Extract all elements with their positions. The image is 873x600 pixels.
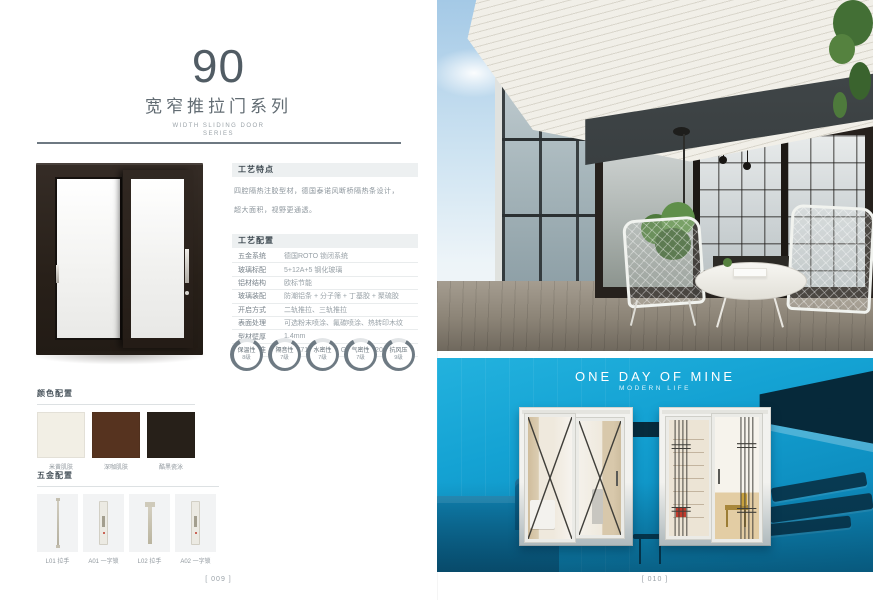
rating-grade: 9级 (394, 355, 403, 362)
config-value: 防潮铝条 + 分子筛 + 丁基胶 + 聚硫胶 (284, 291, 399, 301)
color-config-section: 颜色配置 米黄肌肤 深咖肌肤 酷黑瓷泳 (37, 388, 195, 471)
rating-name: 气密性 (351, 348, 369, 355)
hardware-item-label: A02 一字锁 (175, 556, 216, 565)
door-shadow (28, 351, 211, 365)
door-product-image (36, 163, 203, 366)
line-grille (669, 420, 709, 536)
color-swatch (92, 412, 140, 458)
door-panel (576, 418, 624, 538)
color-swatches (37, 412, 195, 458)
wire-chair (786, 204, 873, 314)
catalog-spread: 90 宽窄推拉门系列 WIDTH SLIDING DOOR SERIES 工艺特… (0, 0, 873, 600)
config-label: 表面处理 (232, 318, 284, 328)
config-label: 玻璃装配 (232, 291, 284, 301)
color-swatch (37, 412, 85, 458)
floor-lamp-head (673, 127, 690, 136)
rating-name: 抗风压 (389, 348, 407, 355)
config-label: 铝材结构 (232, 278, 284, 288)
header-divider (37, 142, 401, 144)
table-row: 玻璃标配5+12A+5 钢化玻璃 (232, 263, 418, 276)
series-number: 90 (0, 42, 437, 90)
showroom-photo: ONE DAY OF MINE MODERN LIFE (437, 358, 873, 572)
door-handle (616, 471, 618, 486)
hardware-item-card (83, 494, 124, 552)
config-label: 玻璃标配 (232, 265, 284, 275)
hardware-item-card (129, 494, 170, 552)
lock-icon (191, 501, 200, 545)
craft-features-heading: 工艺特点 (232, 163, 418, 177)
series-title: 宽窄推拉门系列 (0, 92, 437, 117)
bottom-shade (437, 482, 873, 572)
door-panel (712, 414, 762, 542)
rating-name: 水密性 (313, 348, 331, 355)
config-value: 5+12A+5 钢化玻璃 (284, 265, 342, 275)
color-config-heading: 颜色配置 (37, 388, 195, 399)
performance-ratings: 保温性8级 隔音性7级 水密性7级 气密性7级 抗风压9级 (230, 338, 420, 371)
hardware-config-heading: 五金配置 (37, 470, 219, 481)
leaf (829, 34, 855, 64)
door-panel (666, 417, 712, 539)
door-right-panel (123, 170, 193, 348)
leaf (833, 92, 847, 118)
spec-column: 工艺特点 四腔隔热注胶型材，德国泰诺风断桥隔热条设计， 超大面积，视野更通透。 … (232, 163, 418, 357)
color-swatch (147, 412, 195, 458)
hardware-item-card (37, 494, 78, 552)
books-on-table (733, 268, 767, 277)
page-number-left: [ 009 ] (0, 576, 437, 583)
hardware-items (37, 494, 219, 552)
photo-title: ONE DAY OF MINE (437, 369, 873, 384)
photo-subtitle: MODERN LIFE (437, 385, 873, 392)
config-value: 欧标节能 (284, 278, 312, 288)
wire-chair (622, 215, 706, 308)
door-lock-knob (185, 291, 189, 295)
craft-feature-line: 超大面积，视野更通透。 (234, 205, 418, 215)
door-handle-right (185, 249, 189, 283)
rating-grade: 7级 (280, 355, 289, 362)
config-value: 德国ROTO 锁闭系统 (284, 251, 348, 261)
config-value: 二轨推拉、三轨推拉 (284, 305, 347, 315)
table-row: 玻璃装配防潮铝条 + 分子筛 + 丁基胶 + 聚硫胶 (232, 290, 418, 303)
rating-ring: 气密性7级 (344, 338, 377, 371)
divider (37, 404, 195, 405)
rating-ring: 保温性8级 (230, 338, 263, 371)
cross-grille (579, 421, 621, 535)
pendant-lamp (743, 162, 751, 170)
rating-ring: 水密性7级 (306, 338, 339, 371)
craft-feature-line: 四腔隔热注胶型材，德国泰诺风断桥隔热条设计， (234, 186, 418, 196)
series-header: 90 宽窄推拉门系列 WIDTH SLIDING DOOR SERIES (0, 42, 437, 138)
table-row: 开启方式二轨推拉、三轨推拉 (232, 304, 418, 317)
hardware-item-label: A01 一字锁 (83, 556, 124, 565)
config-label: 开启方式 (232, 305, 284, 315)
hardware-item-label: L02 拉手 (129, 556, 170, 565)
series-subtitle: WIDTH SLIDING DOOR SERIES (0, 122, 437, 138)
rating-grade: 7级 (356, 355, 365, 362)
rating-grade: 8级 (242, 355, 251, 362)
table-row: 表面处理可选粉末喷涂、氟碳喷涂、热转印木纹 (232, 317, 418, 330)
ceiling-spotlights (827, 408, 831, 412)
line-grille (715, 417, 759, 539)
rating-grade: 7级 (318, 355, 327, 362)
config-value: 可选粉末喷涂、氟碳喷涂、热转印木纹 (284, 318, 403, 328)
table-plant (723, 258, 732, 267)
door-panel (525, 414, 575, 542)
leaf (849, 62, 871, 100)
table-row: 五金系统德国ROTO 锁闭系统 (232, 250, 418, 263)
lock-icon (99, 501, 108, 545)
rating-ring: 抗风压9级 (382, 338, 415, 371)
rating-ring: 隔音性7级 (268, 338, 301, 371)
wall-tv-silhouette (633, 422, 659, 437)
divider (37, 486, 219, 487)
page-number-right: [ 010 ] (437, 576, 873, 583)
door-render-line-grille (659, 407, 771, 546)
balcony-photo (437, 0, 873, 351)
series-subtitle-line2: SERIES (0, 130, 437, 138)
door-handle (718, 469, 720, 484)
door-left-glass (55, 177, 122, 340)
hardware-config-section: 五金配置 L01 拉手 A01 一字锁 L02 拉手 A02 一字锁 (37, 470, 219, 565)
craft-config-heading: 工艺配置 (232, 234, 418, 248)
rating-name: 保温性 (237, 348, 255, 355)
handle-icon (148, 502, 152, 544)
door-handle-left (56, 265, 59, 283)
hanging-vines (809, 0, 873, 150)
hardware-item-label: L01 拉手 (37, 556, 78, 565)
table-row: 铝材结构欧标节能 (232, 277, 418, 290)
config-label: 五金系统 (232, 251, 284, 261)
pendant-lamp (719, 156, 727, 164)
door-render-cross-grille (519, 407, 633, 546)
rating-name: 隔音性 (275, 348, 293, 355)
series-subtitle-line1: WIDTH SLIDING DOOR (0, 122, 437, 130)
handle-icon (57, 500, 59, 546)
cross-grille (528, 417, 572, 539)
door-right-glass (131, 179, 184, 338)
hardware-item-card (175, 494, 216, 552)
